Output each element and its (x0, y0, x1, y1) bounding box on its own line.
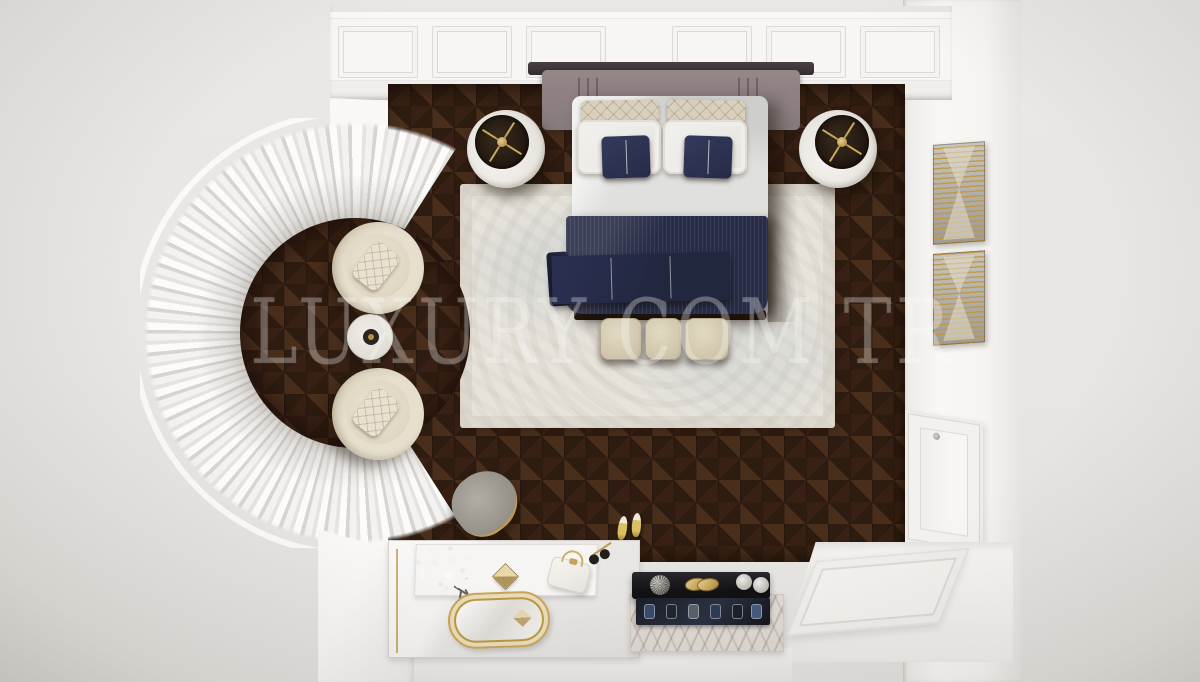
navy-pillow-left (601, 135, 650, 179)
pyramid-reflection (513, 608, 531, 626)
watch-tray (636, 598, 770, 625)
round-box-1 (736, 574, 752, 590)
hourglass-pattern (937, 145, 981, 240)
door-handle (933, 432, 940, 440)
handbag-clasp (569, 558, 578, 566)
white-flowers (444, 570, 453, 579)
round-box-2 (753, 577, 769, 593)
entry-door-panel (786, 548, 970, 637)
entry-floor (778, 542, 1013, 662)
gold-mirror-tray (447, 590, 551, 650)
lamp-bulb (837, 137, 847, 147)
wall-panel (338, 26, 418, 78)
wall-panel (860, 26, 940, 78)
watermark-text: LUXURY COM TR (250, 280, 954, 385)
paneled-door (905, 410, 983, 554)
wall-panel (432, 26, 512, 78)
bedroom-top-view-render: LUXURY COM TR (0, 0, 1200, 682)
wall-art-upper (933, 141, 985, 245)
gold-trim (396, 549, 398, 653)
lamp-bulb (497, 137, 507, 147)
nightstand-right (799, 110, 877, 188)
nightstand-left (467, 110, 545, 188)
mesh-ball-decor (650, 575, 670, 595)
navy-pillow-right (683, 135, 732, 179)
